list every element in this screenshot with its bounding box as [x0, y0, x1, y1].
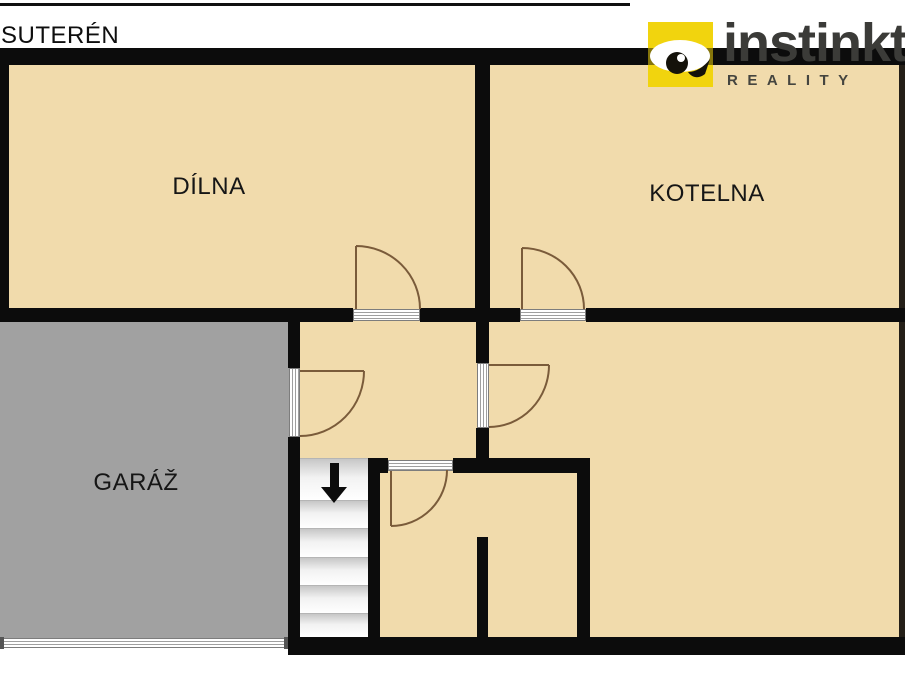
stair-tread	[300, 613, 368, 637]
right-room-upper-floor	[483, 318, 903, 468]
right-room-lower-floor	[585, 465, 903, 641]
door-threshold-bottom-room	[388, 460, 453, 471]
wall-hall-bottom-b	[453, 458, 590, 473]
wall-garage-right-lower	[288, 437, 300, 655]
stair-tread	[300, 528, 368, 557]
stair-tread	[300, 585, 368, 613]
wall-middle-horizontal-a	[0, 308, 353, 322]
door-threshold-dilna	[353, 309, 420, 321]
top-border-line	[0, 3, 630, 6]
door-threshold-garage-wall	[289, 368, 300, 437]
hallway-floor	[295, 318, 481, 463]
garage-door-threshold	[0, 638, 288, 648]
door-threshold-kotelna	[520, 309, 586, 321]
wall-right-edge	[899, 65, 905, 655]
logo-subtitle-text: REALITY	[727, 72, 858, 89]
stair-tread	[300, 500, 368, 528]
garage-door-jamb	[284, 637, 288, 649]
floorplan-page: SUTERÉN	[0, 0, 905, 679]
wall-right-room-left	[577, 473, 590, 637]
arrow-down-icon	[321, 487, 347, 503]
wall-middle-horizontal-c	[586, 308, 905, 322]
door-threshold-center-wall	[477, 363, 489, 428]
stair-tread	[300, 557, 368, 585]
wall-bottom	[288, 637, 905, 655]
wall-middle-horizontal-b	[420, 308, 520, 322]
wall-dilna-kotelna-divider	[475, 65, 490, 308]
garage-door-jamb	[0, 637, 4, 649]
room-label-dilna: DÍLNA	[172, 173, 245, 201]
logo-brand-text: instinkt	[723, 16, 905, 70]
wall-left	[0, 65, 9, 308]
room-label-garaz: GARÁŽ	[93, 469, 178, 497]
wall-partition	[477, 537, 488, 637]
wall-garage-right-upper	[288, 322, 300, 368]
logo-mark	[648, 22, 713, 87]
wall-hall-bottom-a	[368, 458, 388, 473]
arrow-down-icon	[330, 463, 339, 488]
wall-stairs-right	[368, 473, 380, 637]
eye-icon	[648, 22, 713, 87]
wall-center-upper	[476, 322, 489, 363]
room-label-kotelna: KOTELNA	[649, 180, 765, 208]
page-title: SUTERÉN	[1, 22, 119, 50]
